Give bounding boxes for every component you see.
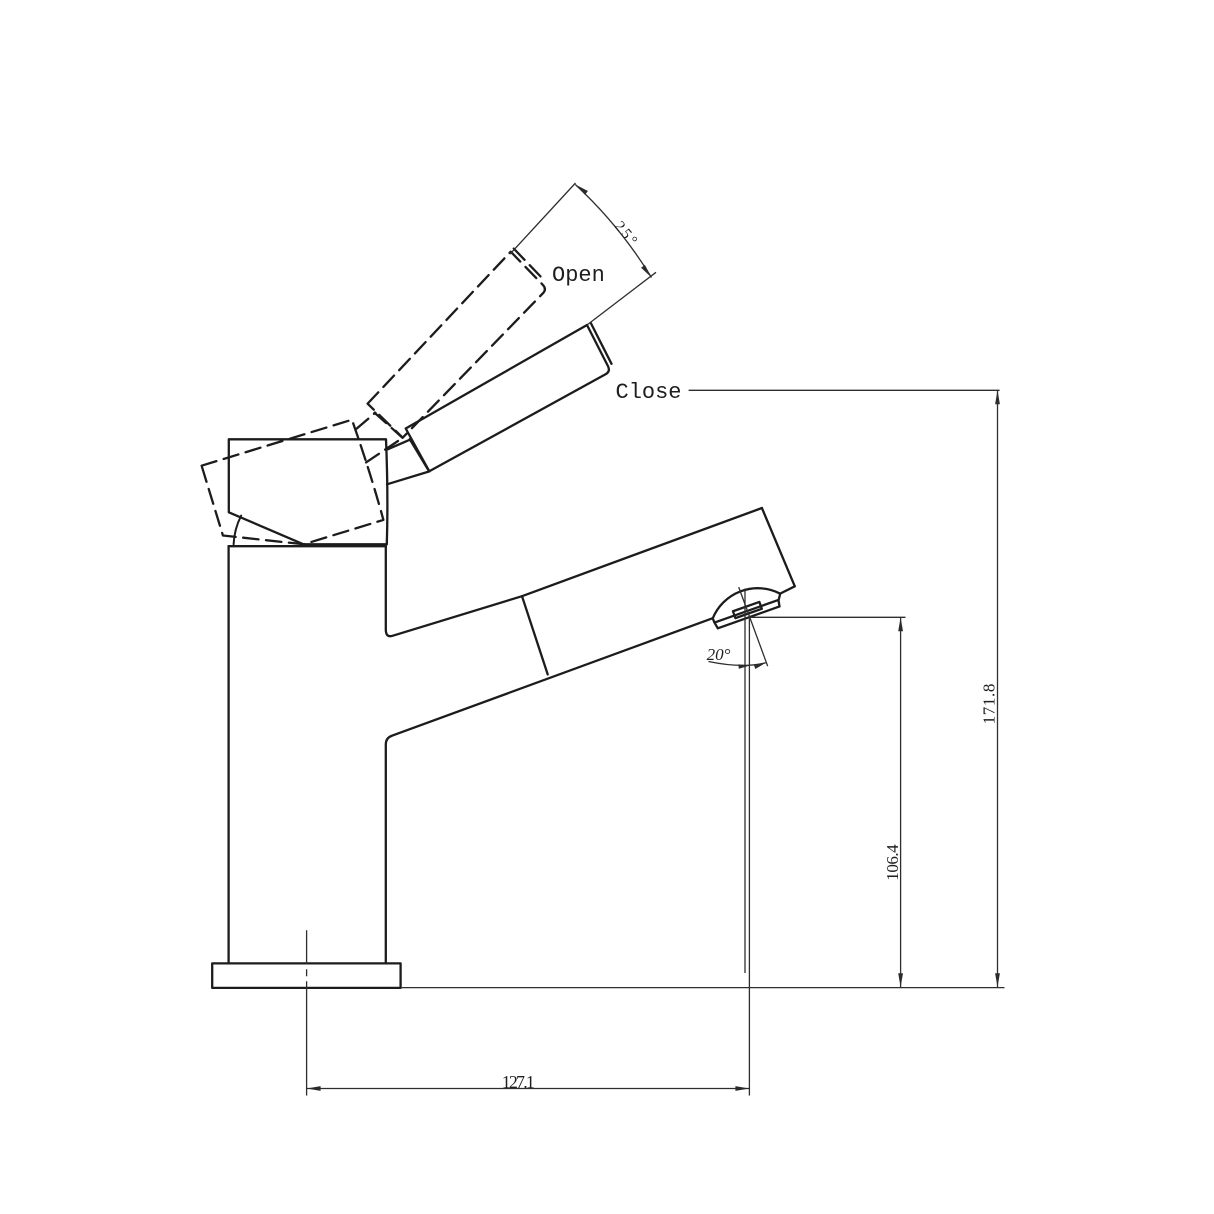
svg-text:171.8: 171.8 bbox=[980, 684, 999, 725]
svg-text:Close: Close bbox=[616, 380, 682, 405]
svg-text:Open: Open bbox=[552, 263, 605, 288]
svg-text:127.1: 127.1 bbox=[502, 1072, 535, 1092]
svg-text:20°: 20° bbox=[707, 645, 731, 664]
svg-text:106.4: 106.4 bbox=[883, 844, 902, 881]
